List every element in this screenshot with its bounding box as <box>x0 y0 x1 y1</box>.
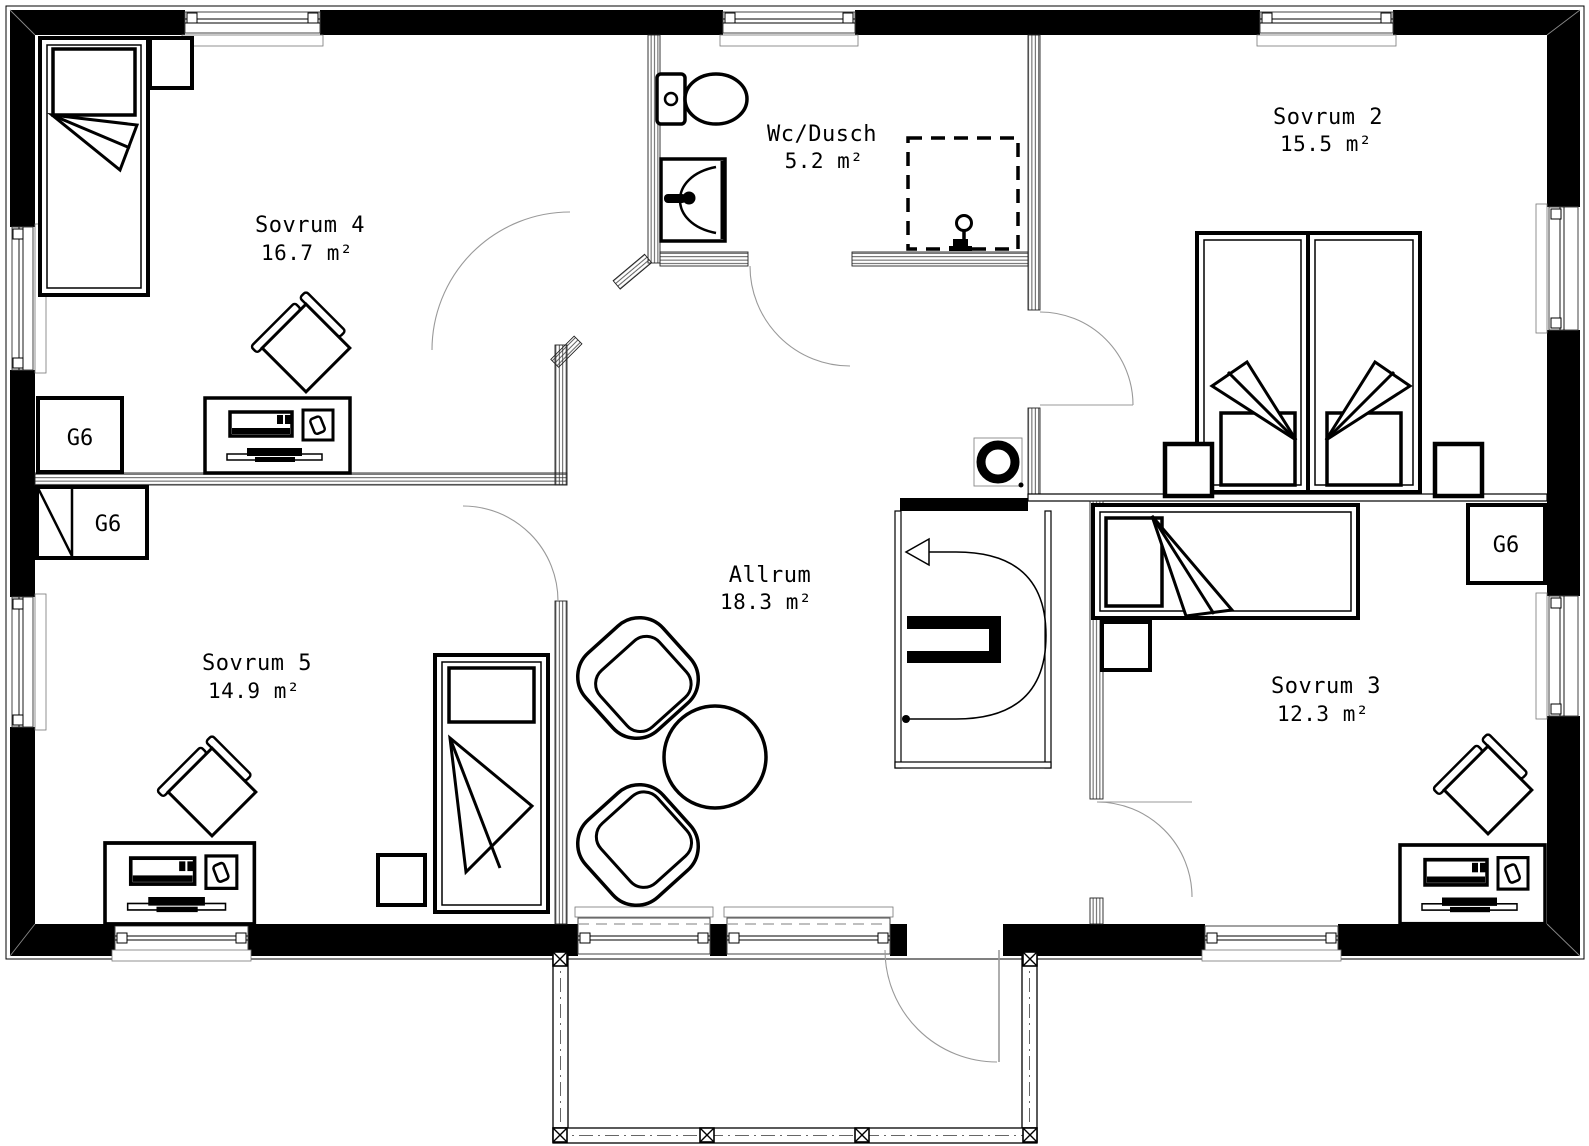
wardrobe-label: G6 <box>95 512 122 537</box>
stair-center-wall <box>907 616 1001 663</box>
room-label-allrum: Allrum 18.3 m² <box>720 563 812 614</box>
wardrobe-g6-sovrum4: G6 <box>38 398 122 472</box>
window-top-sovrum4 <box>182 10 323 46</box>
wardrobe-g6-sovrum5: G6 <box>37 487 147 558</box>
floor-plan-page: G6 G6 G6 Sovrum 4 16.7 m² Wc/Dusch 5.2 m… <box>0 0 1589 1146</box>
wardrobe-label: G6 <box>1493 533 1520 558</box>
window-bottom-sovrum5 <box>112 924 251 961</box>
room-name: Sovrum 5 <box>202 651 312 676</box>
wardrobe-g6-sovrum3: G6 <box>1468 505 1545 583</box>
washbasin-icon <box>661 159 725 241</box>
chair-sovrum3 <box>1433 733 1538 838</box>
room-area: 5.2 m² <box>785 149 864 173</box>
door-arc-sovrum3 <box>1097 802 1192 897</box>
window-right-sovrum2 <box>1536 204 1580 333</box>
room-name: Sovrum 2 <box>1273 105 1383 130</box>
room-area: 14.9 m² <box>208 679 300 703</box>
chair-sovrum4 <box>251 291 356 396</box>
room-label-sovrum3: Sovrum 3 12.3 m² <box>1271 674 1381 726</box>
nightstand-sovrum4 <box>150 38 192 88</box>
stair-walkline <box>906 552 1046 719</box>
window-left-sovrum5 <box>10 594 46 730</box>
balcony-door <box>885 924 1011 1062</box>
nightstand-sovrum3 <box>1102 622 1150 670</box>
door-arc-sovrum2 <box>1040 312 1133 405</box>
room-label-sovrum5: Sovrum 5 14.9 m² <box>202 651 312 703</box>
room-area: 18.3 m² <box>720 590 812 614</box>
room-label-sovrum4: Sovrum 4 16.7 m² <box>255 213 365 265</box>
toilet-icon <box>657 74 747 124</box>
staircase <box>895 498 1051 768</box>
desk-sovrum3 <box>1400 845 1545 924</box>
room-label-sovrum2: Sovrum 2 15.5 m² <box>1273 105 1383 156</box>
wardrobe-label: G6 <box>67 426 94 451</box>
desk-sovrum4 <box>205 398 350 473</box>
room-area: 12.3 m² <box>1277 702 1369 726</box>
nightstand-sovrum2-right <box>1435 444 1482 496</box>
floor-plan: G6 G6 G6 Sovrum 4 16.7 m² Wc/Dusch 5.2 m… <box>0 0 1589 1146</box>
door-arc-sovrum4 <box>432 212 570 350</box>
chair-sovrum5 <box>157 735 262 840</box>
nightstand-sovrum2-left <box>1165 444 1212 496</box>
window-top-wc <box>720 10 858 46</box>
door-arc-sovrum5 <box>463 506 558 601</box>
bed-sovrum5 <box>435 655 548 912</box>
window-bottom-allrum-2 <box>724 907 893 956</box>
bed-sovrum3 <box>1093 505 1358 618</box>
window-right-sovrum3 <box>1536 593 1580 719</box>
room-name: Allrum <box>729 563 811 588</box>
room-area: 15.5 m² <box>1280 132 1372 156</box>
nightstand-sovrum5 <box>378 855 425 905</box>
window-bottom-sovrum3 <box>1202 924 1341 961</box>
door-arc-wc <box>750 266 850 366</box>
shower-icon <box>908 138 1018 251</box>
round-table-allrum <box>664 706 766 808</box>
stair-direction-arrow-icon <box>906 539 929 565</box>
double-bed-sovrum2 <box>1197 233 1420 492</box>
room-name: Sovrum 3 <box>1271 674 1381 699</box>
room-name: Wc/Dusch <box>767 122 877 147</box>
room-label-wc-dusch: Wc/Dusch 5.2 m² <box>767 122 877 173</box>
balcony-railing <box>553 952 1037 1143</box>
window-top-sovrum2 <box>1257 10 1396 46</box>
desk-sovrum5 <box>105 843 254 924</box>
room-name: Sovrum 4 <box>255 213 365 238</box>
chimney-flue-icon <box>974 438 1024 488</box>
window-bottom-allrum-1 <box>575 907 713 956</box>
room-area: 16.7 m² <box>261 241 353 265</box>
bed-sovrum4 <box>40 38 148 295</box>
